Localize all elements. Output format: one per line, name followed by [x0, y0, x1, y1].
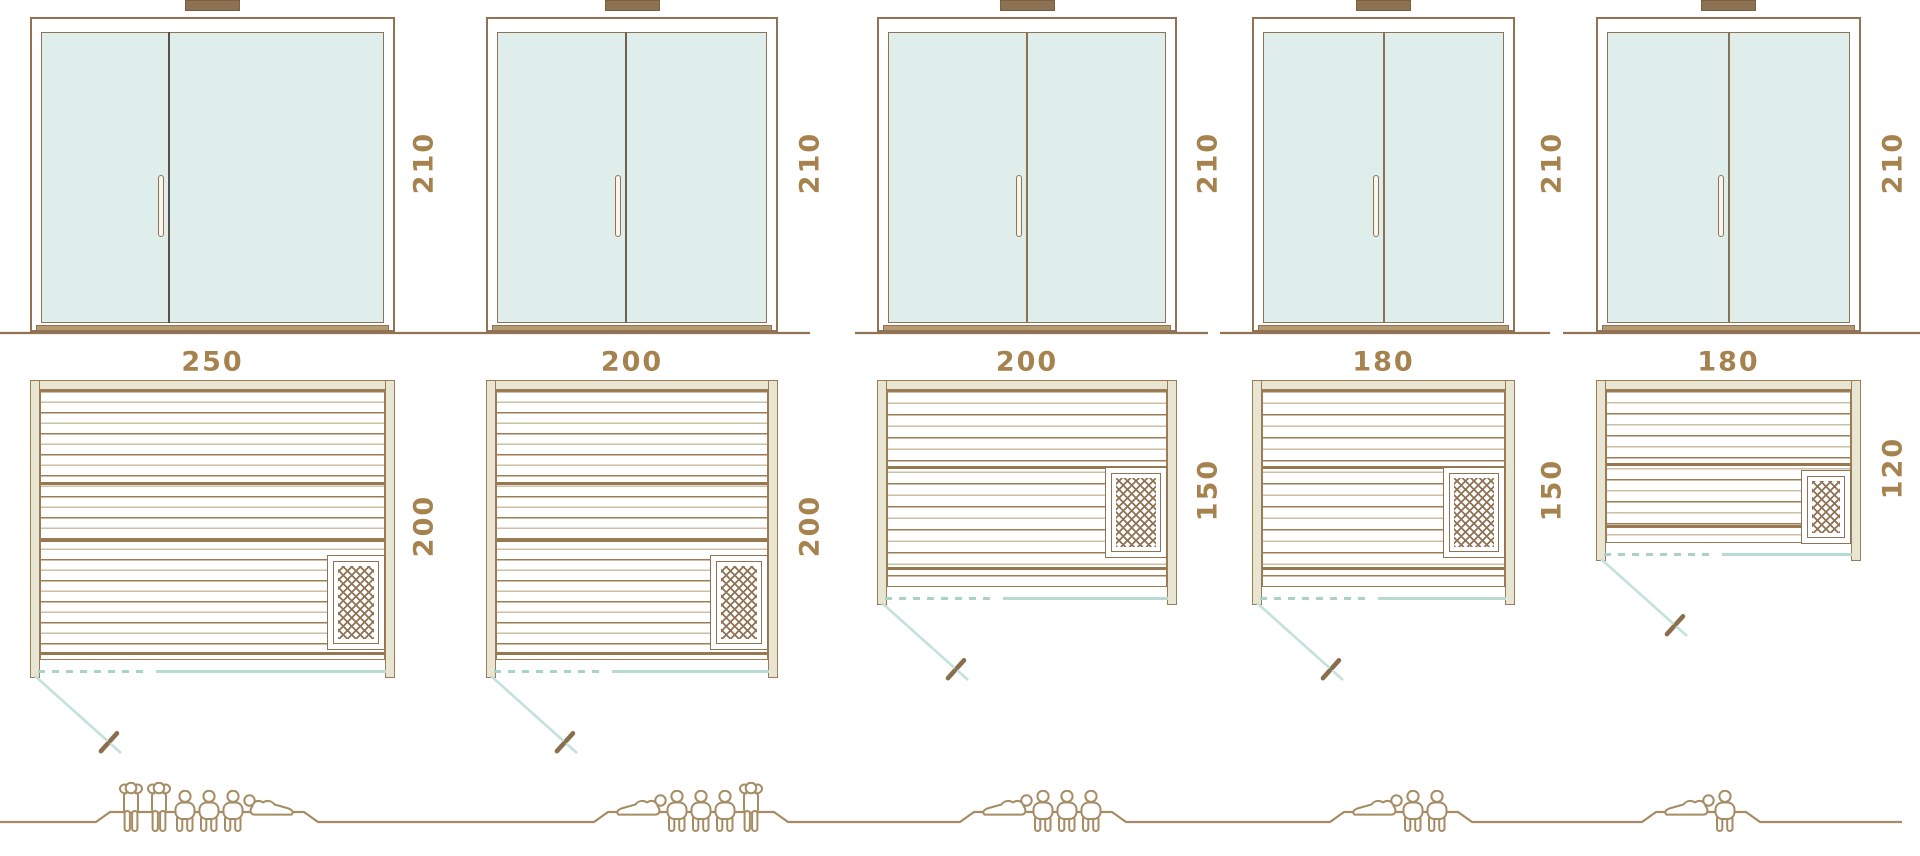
door-height-label: 210	[795, 132, 826, 194]
door-swing-line	[1601, 559, 1687, 636]
glass-panels	[497, 32, 767, 323]
wall-top	[1252, 380, 1515, 390]
door-swing-line	[882, 603, 968, 680]
glass-front-door-opening	[494, 670, 606, 673]
glass-panels	[41, 32, 384, 323]
heater-symbol	[710, 555, 768, 650]
door-elevation	[1252, 17, 1515, 332]
door-sill	[883, 325, 1171, 331]
swing-door-handle-icon	[110, 733, 117, 740]
door-height-label: 210	[1878, 132, 1909, 194]
swing-door-handle-icon	[957, 660, 964, 667]
people-ground-line	[0, 812, 1902, 822]
swing-door-handle-icon	[1676, 616, 1683, 623]
figure-sitting-icon	[176, 791, 195, 831]
door-divider	[1026, 32, 1028, 323]
figure-lying-icon	[1665, 795, 1713, 814]
floor-plan	[877, 380, 1177, 605]
capacity-figures-200x200	[617, 783, 762, 831]
door-divider	[1383, 32, 1385, 323]
door-sill	[1258, 325, 1509, 331]
bench-edge-line	[888, 567, 1166, 570]
door-divider	[625, 32, 627, 323]
door-elevation	[30, 17, 395, 332]
glass-front-door-opening	[1604, 553, 1716, 556]
door-elevation	[877, 17, 1177, 332]
roof-cap	[1356, 0, 1411, 11]
plan-depth-label: 150	[1537, 458, 1568, 520]
door-handle-icon	[615, 175, 621, 237]
heater-stones-hatch	[338, 566, 374, 639]
plan-depth-label: 150	[1193, 458, 1224, 520]
glass-front-fixed	[156, 670, 386, 673]
figure-sitting-icon	[1082, 791, 1101, 831]
figure-standing-icon	[740, 783, 762, 831]
swing-door-handle-icon	[1667, 627, 1674, 634]
glass-front-fixed	[1378, 597, 1506, 600]
figure-sitting-icon	[200, 791, 219, 831]
floor-plan	[1252, 380, 1515, 605]
figure-sitting-icon	[1404, 791, 1423, 831]
door-height-label: 210	[1537, 132, 1568, 194]
plan-width-label: 200	[996, 347, 1058, 378]
swing-door-handle-icon	[566, 733, 573, 740]
door-handle-icon	[1016, 175, 1022, 237]
roof-cap	[1000, 0, 1055, 11]
heater-stones-hatch	[721, 566, 757, 639]
wall-top	[486, 380, 778, 390]
wall-left	[1596, 380, 1606, 561]
wall-right	[1505, 380, 1515, 605]
wall-top	[1596, 380, 1861, 390]
door-sill	[1602, 325, 1855, 331]
swing-door-handle-icon	[948, 671, 955, 678]
door-divider	[1728, 32, 1730, 323]
swing-door-handle-icon	[101, 744, 108, 751]
figure-lying-icon	[244, 795, 292, 814]
heater-stones-hatch	[1116, 478, 1156, 547]
heater-inner-frame	[333, 561, 379, 644]
door-swing-line	[35, 676, 121, 753]
bench-edge-line	[41, 539, 384, 542]
plan-depth-label: 120	[1878, 436, 1909, 498]
swing-door-handle-icon	[1332, 660, 1339, 667]
capacity-figures-180x150	[1353, 791, 1446, 831]
heater-symbol	[1801, 470, 1851, 544]
heater-stones-hatch	[1812, 481, 1840, 533]
bench-edge-line	[497, 652, 767, 655]
sauna-size-comparison-diagram: 2102502002102002002102001502101801502101…	[0, 0, 1920, 856]
figure-sitting-icon	[1428, 791, 1447, 831]
figure-lying-icon	[617, 795, 665, 814]
heater-inner-frame	[716, 561, 762, 644]
heater-stones-hatch	[1454, 478, 1494, 547]
floor-plan	[486, 380, 778, 678]
wall-left	[30, 380, 40, 678]
door-height-label: 210	[409, 132, 440, 194]
heater-symbol	[327, 555, 385, 650]
door-handle-icon	[1373, 175, 1379, 237]
wall-right	[1851, 380, 1861, 561]
swing-door-handle-icon	[557, 744, 564, 751]
door-handle-icon	[158, 175, 164, 237]
wall-left	[1252, 380, 1262, 605]
roof-cap	[185, 0, 240, 11]
glass-front-fixed	[1722, 553, 1852, 556]
door-swing-line	[491, 676, 577, 753]
figure-lying-icon	[1353, 795, 1401, 814]
glass-front-fixed	[612, 670, 769, 673]
bench-edge-line	[497, 539, 767, 542]
door-handle-icon	[1718, 175, 1724, 237]
bench-edge-line	[41, 652, 384, 655]
figure-standing-icon	[120, 783, 142, 831]
door-divider	[168, 32, 170, 323]
bench-edge-line	[41, 482, 384, 485]
wall-left	[486, 380, 496, 678]
figure-sitting-icon	[692, 791, 711, 831]
wall-top	[877, 380, 1177, 390]
heater-symbol	[1105, 467, 1167, 558]
capacity-figures-200x150	[983, 791, 1100, 831]
glass-front-door-opening	[1260, 597, 1372, 600]
figure-sitting-icon	[1058, 791, 1077, 831]
heater-inner-frame	[1111, 473, 1161, 552]
capacity-figures-180x120	[1665, 791, 1734, 831]
bench-edge-line	[1263, 567, 1504, 570]
glass-front-door-opening	[885, 597, 997, 600]
glass-front-door-opening	[38, 670, 150, 673]
plan-width-label: 180	[1697, 347, 1759, 378]
figure-sitting-icon	[1034, 791, 1053, 831]
door-height-label: 210	[1193, 132, 1224, 194]
plan-depth-label: 200	[795, 495, 826, 557]
floor-plan	[30, 380, 395, 678]
door-swing-line	[1257, 603, 1343, 680]
roof-cap	[605, 0, 660, 11]
wall-right	[768, 380, 778, 678]
figure-standing-icon	[148, 783, 170, 831]
door-sill	[492, 325, 772, 331]
figure-sitting-icon	[1716, 791, 1735, 831]
bench-edge-line	[1607, 463, 1850, 466]
wall-right	[1167, 380, 1177, 605]
wall-top	[30, 380, 395, 390]
plan-width-label: 180	[1352, 347, 1414, 378]
wall-right	[385, 380, 395, 678]
heater-symbol	[1443, 467, 1505, 558]
roof-cap	[1701, 0, 1756, 11]
figure-sitting-icon	[716, 791, 735, 831]
figure-sitting-icon	[224, 791, 243, 831]
figure-lying-icon	[983, 795, 1031, 814]
plan-depth-label: 200	[409, 495, 440, 557]
plan-width-label: 200	[601, 347, 663, 378]
door-elevation	[486, 17, 778, 332]
wall-left	[877, 380, 887, 605]
floor-plan	[1596, 380, 1861, 561]
bench-edge-line	[497, 482, 767, 485]
heater-inner-frame	[1807, 476, 1845, 538]
glass-front-fixed	[1003, 597, 1168, 600]
heater-inner-frame	[1449, 473, 1499, 552]
door-sill	[36, 325, 389, 331]
door-elevation	[1596, 17, 1861, 332]
capacity-figures-250x200	[120, 783, 293, 831]
plan-width-label: 250	[181, 347, 243, 378]
figure-sitting-icon	[668, 791, 687, 831]
swing-door-handle-icon	[1323, 671, 1330, 678]
